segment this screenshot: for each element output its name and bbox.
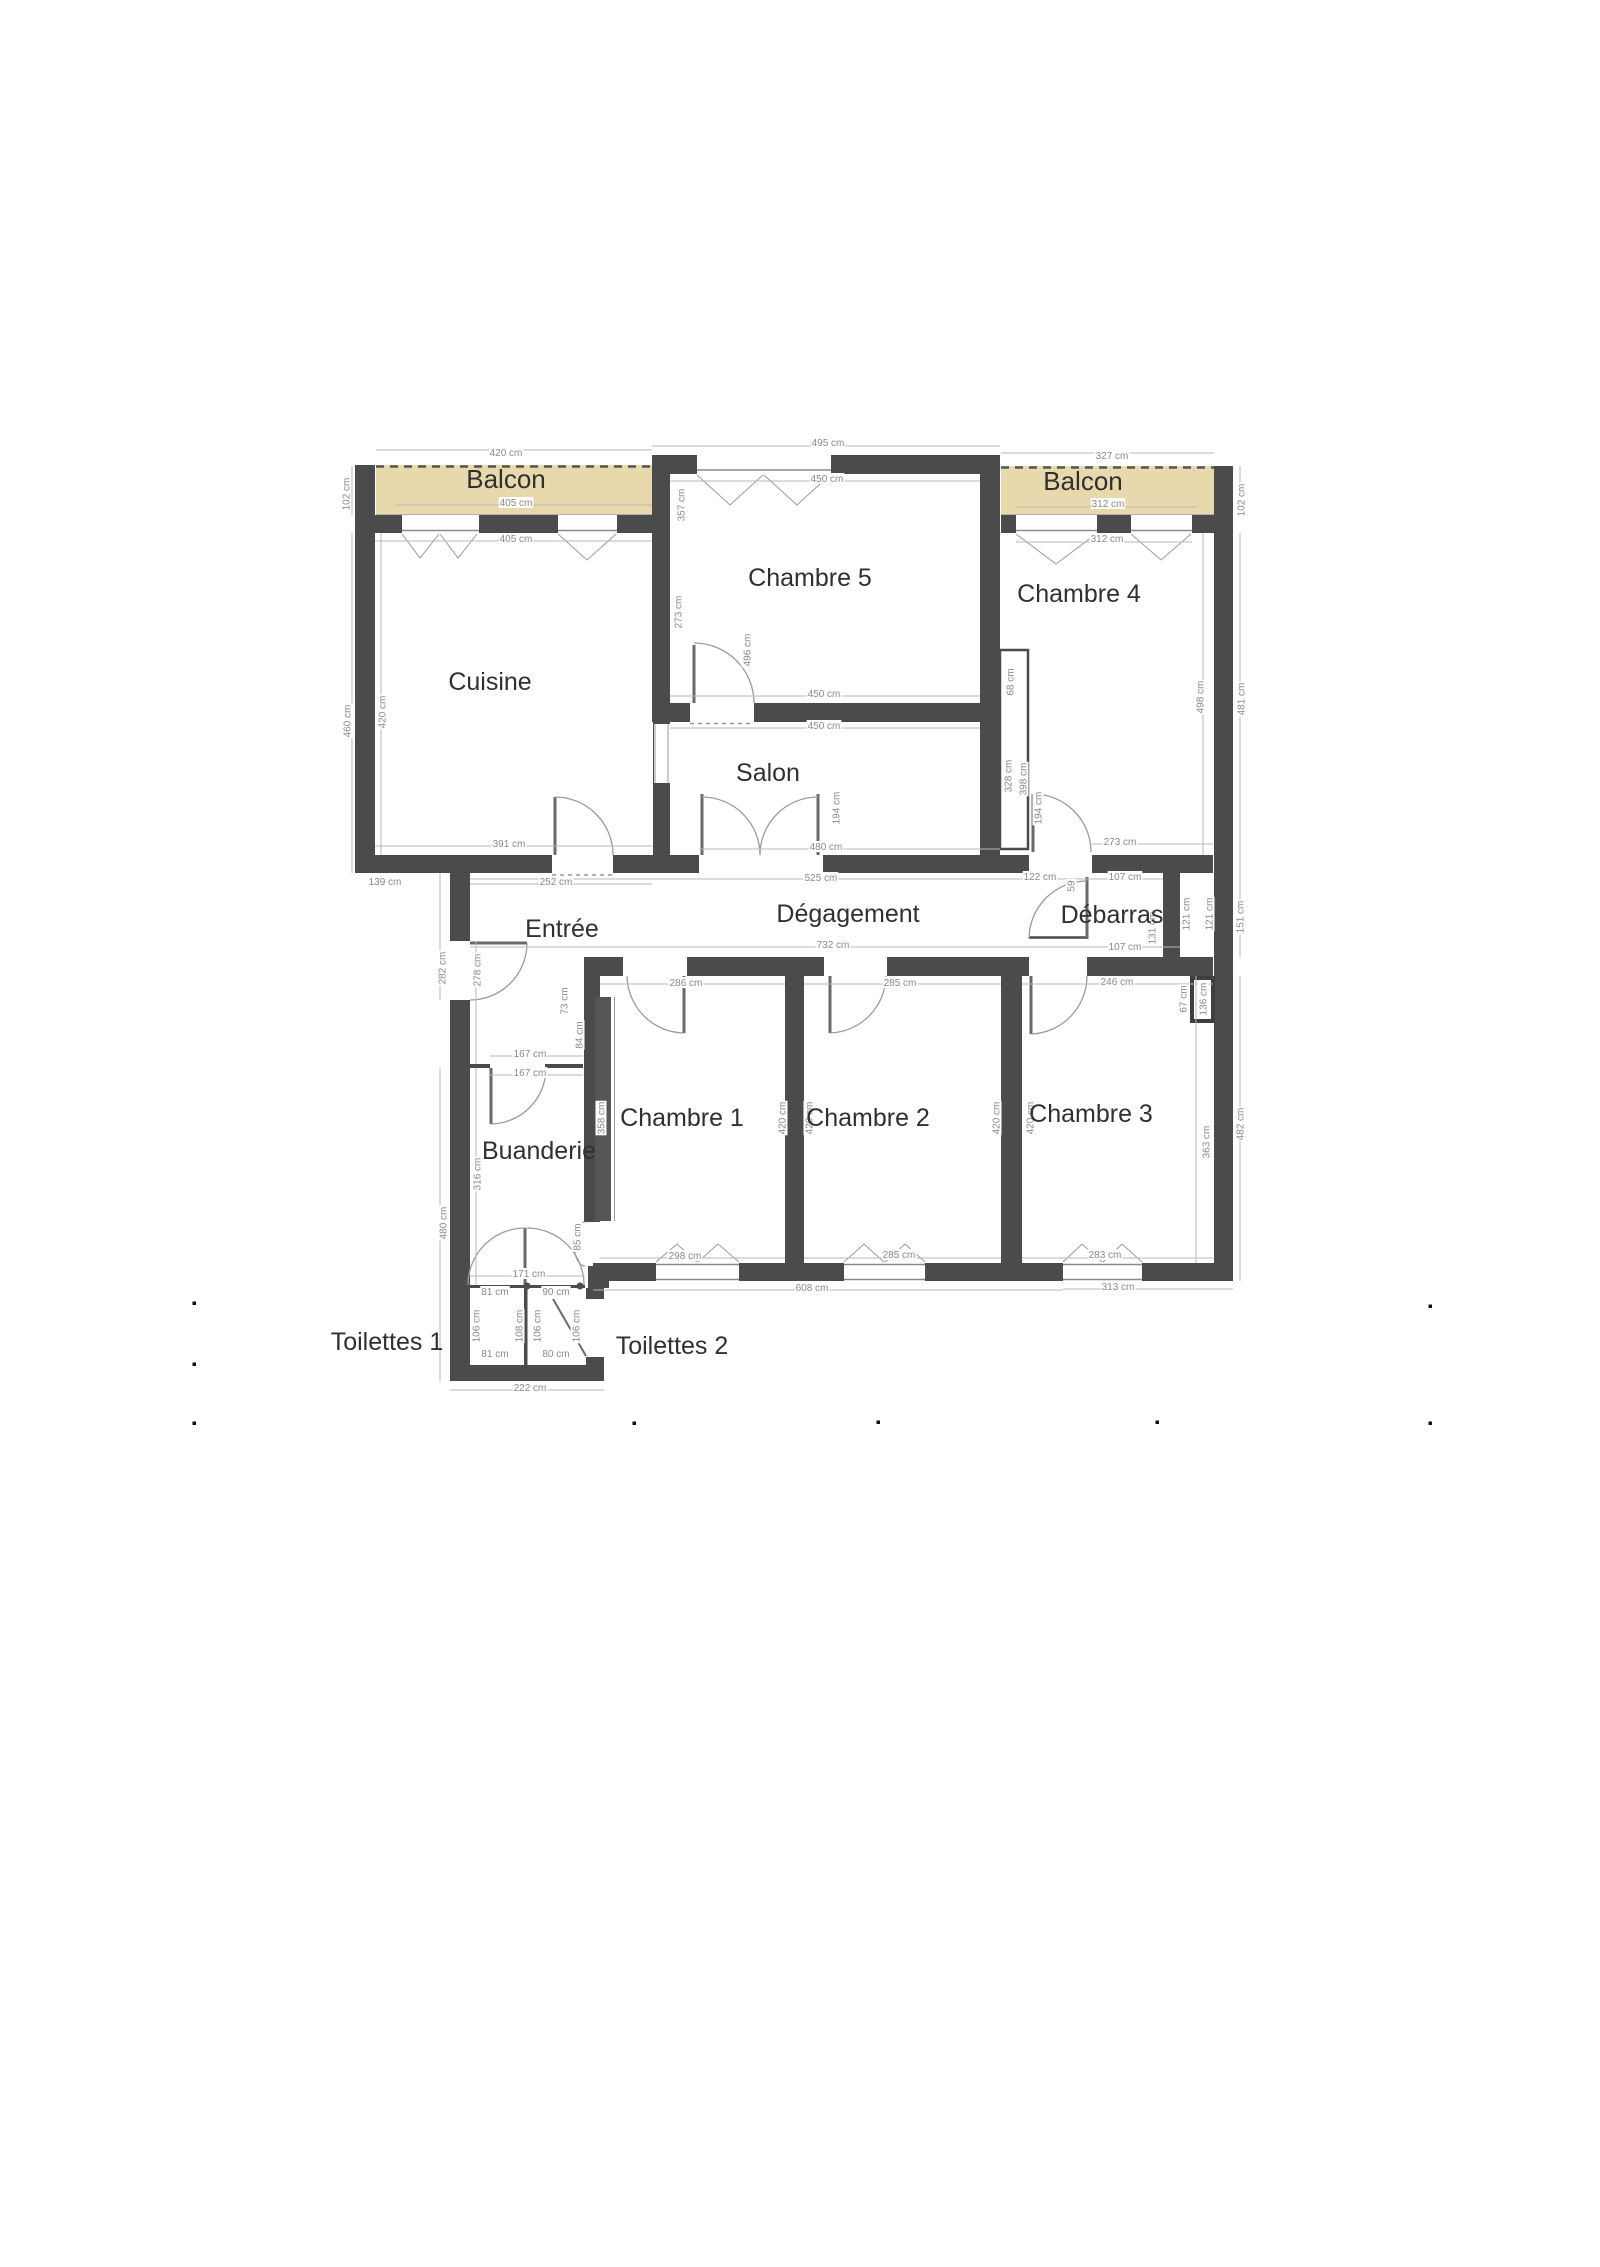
- svg-text:102 cm: 102 cm: [1237, 484, 1248, 517]
- svg-text:286 cm: 286 cm: [670, 978, 703, 989]
- svg-text:136 cm: 136 cm: [1199, 983, 1210, 1016]
- svg-text:420 cm: 420 cm: [490, 448, 523, 459]
- svg-text:Balcon: Balcon: [1043, 466, 1123, 496]
- svg-text:363 cm: 363 cm: [1202, 1126, 1213, 1159]
- svg-text:106 cm: 106 cm: [472, 1310, 483, 1343]
- svg-text:732 cm: 732 cm: [817, 940, 850, 951]
- svg-text:121 cm: 121 cm: [1205, 898, 1216, 931]
- svg-text:608 cm: 608 cm: [796, 1283, 829, 1294]
- svg-text:67 cm: 67 cm: [1179, 985, 1190, 1012]
- svg-text:327 cm: 327 cm: [1096, 451, 1129, 462]
- svg-text:222 cm: 222 cm: [514, 1383, 547, 1394]
- svg-text:450 cm: 450 cm: [808, 721, 841, 732]
- svg-text:Chambre 3: Chambre 3: [1029, 1100, 1153, 1128]
- svg-text:Débarras: Débarras: [1061, 901, 1164, 929]
- svg-text:482 cm: 482 cm: [1236, 1108, 1247, 1141]
- svg-text:Cuisine: Cuisine: [448, 668, 531, 696]
- svg-text:285 cm: 285 cm: [883, 1250, 916, 1261]
- svg-text:312 cm: 312 cm: [1092, 499, 1125, 510]
- svg-text:139 cm: 139 cm: [369, 877, 402, 888]
- svg-text:285 cm: 285 cm: [884, 978, 917, 989]
- svg-text:495 cm: 495 cm: [812, 438, 845, 449]
- svg-text:460 cm: 460 cm: [343, 705, 354, 738]
- svg-text:405 cm: 405 cm: [500, 498, 533, 509]
- svg-text:121 cm: 121 cm: [1182, 898, 1193, 931]
- svg-text:283 cm: 283 cm: [1089, 1250, 1122, 1261]
- svg-text:194 cm: 194 cm: [832, 792, 843, 825]
- svg-text:282 cm: 282 cm: [438, 952, 449, 985]
- svg-text:420 cm: 420 cm: [778, 1102, 789, 1135]
- svg-text:167 cm: 167 cm: [514, 1068, 547, 1079]
- svg-text:81 cm: 81 cm: [481, 1349, 508, 1360]
- svg-text:Toilettes 2: Toilettes 2: [616, 1332, 729, 1360]
- svg-text:357 cm: 357 cm: [677, 489, 688, 522]
- svg-text:480 cm: 480 cm: [810, 842, 843, 853]
- svg-text:252 cm: 252 cm: [540, 877, 573, 888]
- svg-text:167 cm: 167 cm: [514, 1049, 547, 1060]
- svg-text:Dégagement: Dégagement: [776, 900, 919, 928]
- svg-text:Buanderie: Buanderie: [482, 1137, 596, 1165]
- svg-text:59: 59: [1067, 880, 1078, 892]
- svg-text:420 cm: 420 cm: [992, 1102, 1003, 1135]
- svg-text:84 cm: 84 cm: [575, 1021, 586, 1048]
- svg-text:298 cm: 298 cm: [669, 1251, 702, 1262]
- svg-text:122 cm: 122 cm: [1024, 872, 1057, 883]
- svg-text:278 cm: 278 cm: [473, 954, 484, 987]
- svg-text:420 cm: 420 cm: [378, 696, 389, 729]
- svg-text:398 cm: 398 cm: [1019, 763, 1030, 796]
- svg-text:Chambre 5: Chambre 5: [748, 564, 872, 592]
- svg-text:151 cm: 151 cm: [1236, 901, 1247, 934]
- svg-text:328 cm: 328 cm: [1004, 760, 1015, 793]
- svg-text:Toilettes 1: Toilettes 1: [331, 1328, 444, 1356]
- svg-text:81 cm: 81 cm: [481, 1287, 508, 1298]
- svg-text:Entrée: Entrée: [525, 915, 599, 943]
- svg-text:Balcon: Balcon: [466, 464, 546, 494]
- svg-text:194 cm: 194 cm: [1034, 792, 1045, 825]
- svg-text:525 cm: 525 cm: [805, 873, 838, 884]
- svg-text:85 cm: 85 cm: [573, 1223, 584, 1250]
- svg-text:102 cm: 102 cm: [342, 478, 353, 511]
- svg-text:171 cm: 171 cm: [513, 1269, 546, 1280]
- svg-text:391 cm: 391 cm: [493, 839, 526, 850]
- svg-text:107 cm: 107 cm: [1109, 872, 1142, 883]
- svg-text:90 cm: 90 cm: [542, 1287, 569, 1298]
- svg-text:273 cm: 273 cm: [674, 596, 685, 629]
- svg-text:Chambre 4: Chambre 4: [1017, 580, 1141, 608]
- svg-text:68 cm: 68 cm: [1006, 668, 1017, 695]
- svg-text:498 cm: 498 cm: [1196, 681, 1207, 714]
- svg-text:450 cm: 450 cm: [811, 474, 844, 485]
- svg-text:313 cm: 313 cm: [1102, 1282, 1135, 1293]
- svg-text:73 cm: 73 cm: [560, 987, 571, 1014]
- svg-text:273 cm: 273 cm: [1104, 837, 1137, 848]
- svg-text:108 cm: 108 cm: [515, 1310, 526, 1343]
- svg-text:358 cm: 358 cm: [597, 1102, 608, 1135]
- svg-text:496 cm: 496 cm: [743, 634, 754, 667]
- svg-text:312 cm: 312 cm: [1091, 534, 1124, 545]
- svg-text:480 cm: 480 cm: [439, 1207, 450, 1240]
- svg-text:Chambre 2: Chambre 2: [806, 1104, 930, 1132]
- svg-text:106 cm: 106 cm: [572, 1310, 583, 1343]
- svg-text:80 cm: 80 cm: [542, 1349, 569, 1360]
- svg-text:Salon: Salon: [736, 759, 800, 787]
- svg-text:106 cm: 106 cm: [533, 1310, 544, 1343]
- svg-text:481 cm: 481 cm: [1237, 683, 1248, 716]
- svg-text:107 cm: 107 cm: [1109, 942, 1142, 953]
- svg-text:246 cm: 246 cm: [1101, 977, 1134, 988]
- svg-text:405 cm: 405 cm: [500, 534, 533, 545]
- svg-text:Chambre 1: Chambre 1: [620, 1104, 744, 1132]
- svg-text:450 cm: 450 cm: [808, 689, 841, 700]
